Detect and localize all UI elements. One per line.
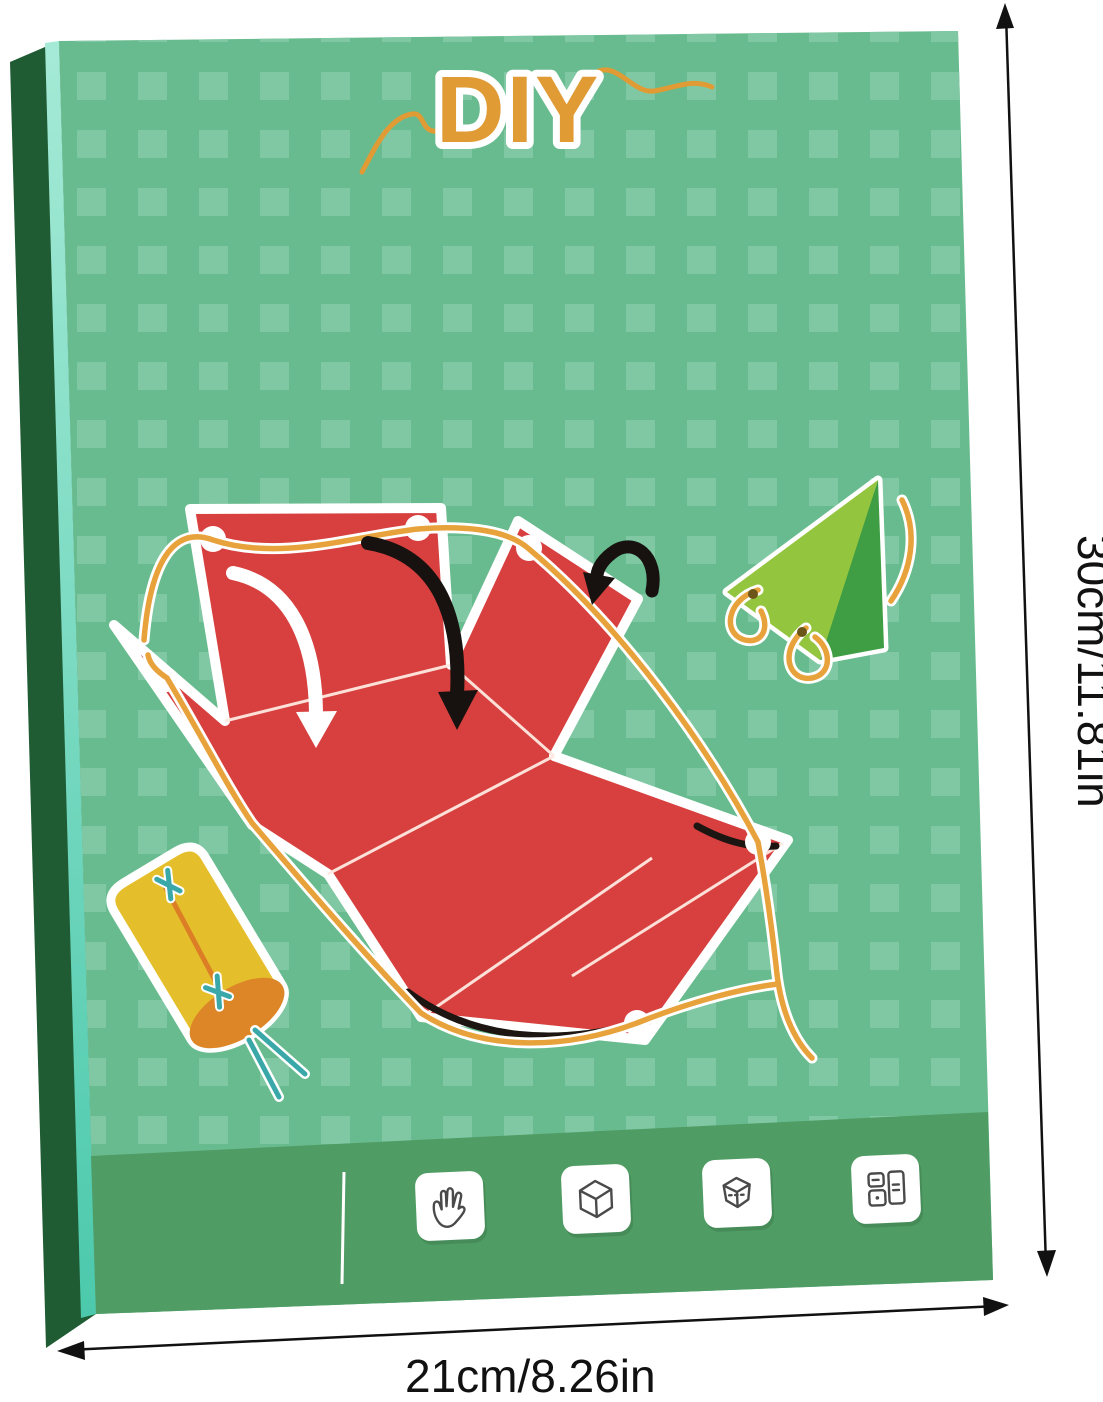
transparent-cube-icon xyxy=(702,1157,775,1232)
product-box: DIY xyxy=(10,31,993,1348)
cube-outline-icon xyxy=(561,1163,634,1238)
width-arrow-line xyxy=(68,1306,998,1350)
hand-icon xyxy=(415,1170,488,1245)
height-label: 30cm/11.81in xyxy=(1068,535,1103,808)
split-cards-icon xyxy=(851,1153,924,1228)
scene: DIY xyxy=(0,0,1103,1402)
box-title: DIY xyxy=(436,57,600,163)
arrowhead-up-icon xyxy=(996,3,1014,29)
height-arrow-line xyxy=(1006,14,1046,1266)
width-label: 21cm/8.26in xyxy=(405,1350,656,1402)
width-dimension: 21cm/8.26in xyxy=(57,1297,1009,1402)
arrowhead-left-icon xyxy=(57,1341,85,1360)
footer-divider-line xyxy=(342,1172,344,1284)
arrowhead-down-icon xyxy=(1037,1250,1056,1277)
height-dimension: 30cm/11.81in xyxy=(996,3,1103,1277)
product-dimension-image: DIY xyxy=(0,0,1103,1402)
arrowhead-right-icon xyxy=(983,1297,1009,1316)
